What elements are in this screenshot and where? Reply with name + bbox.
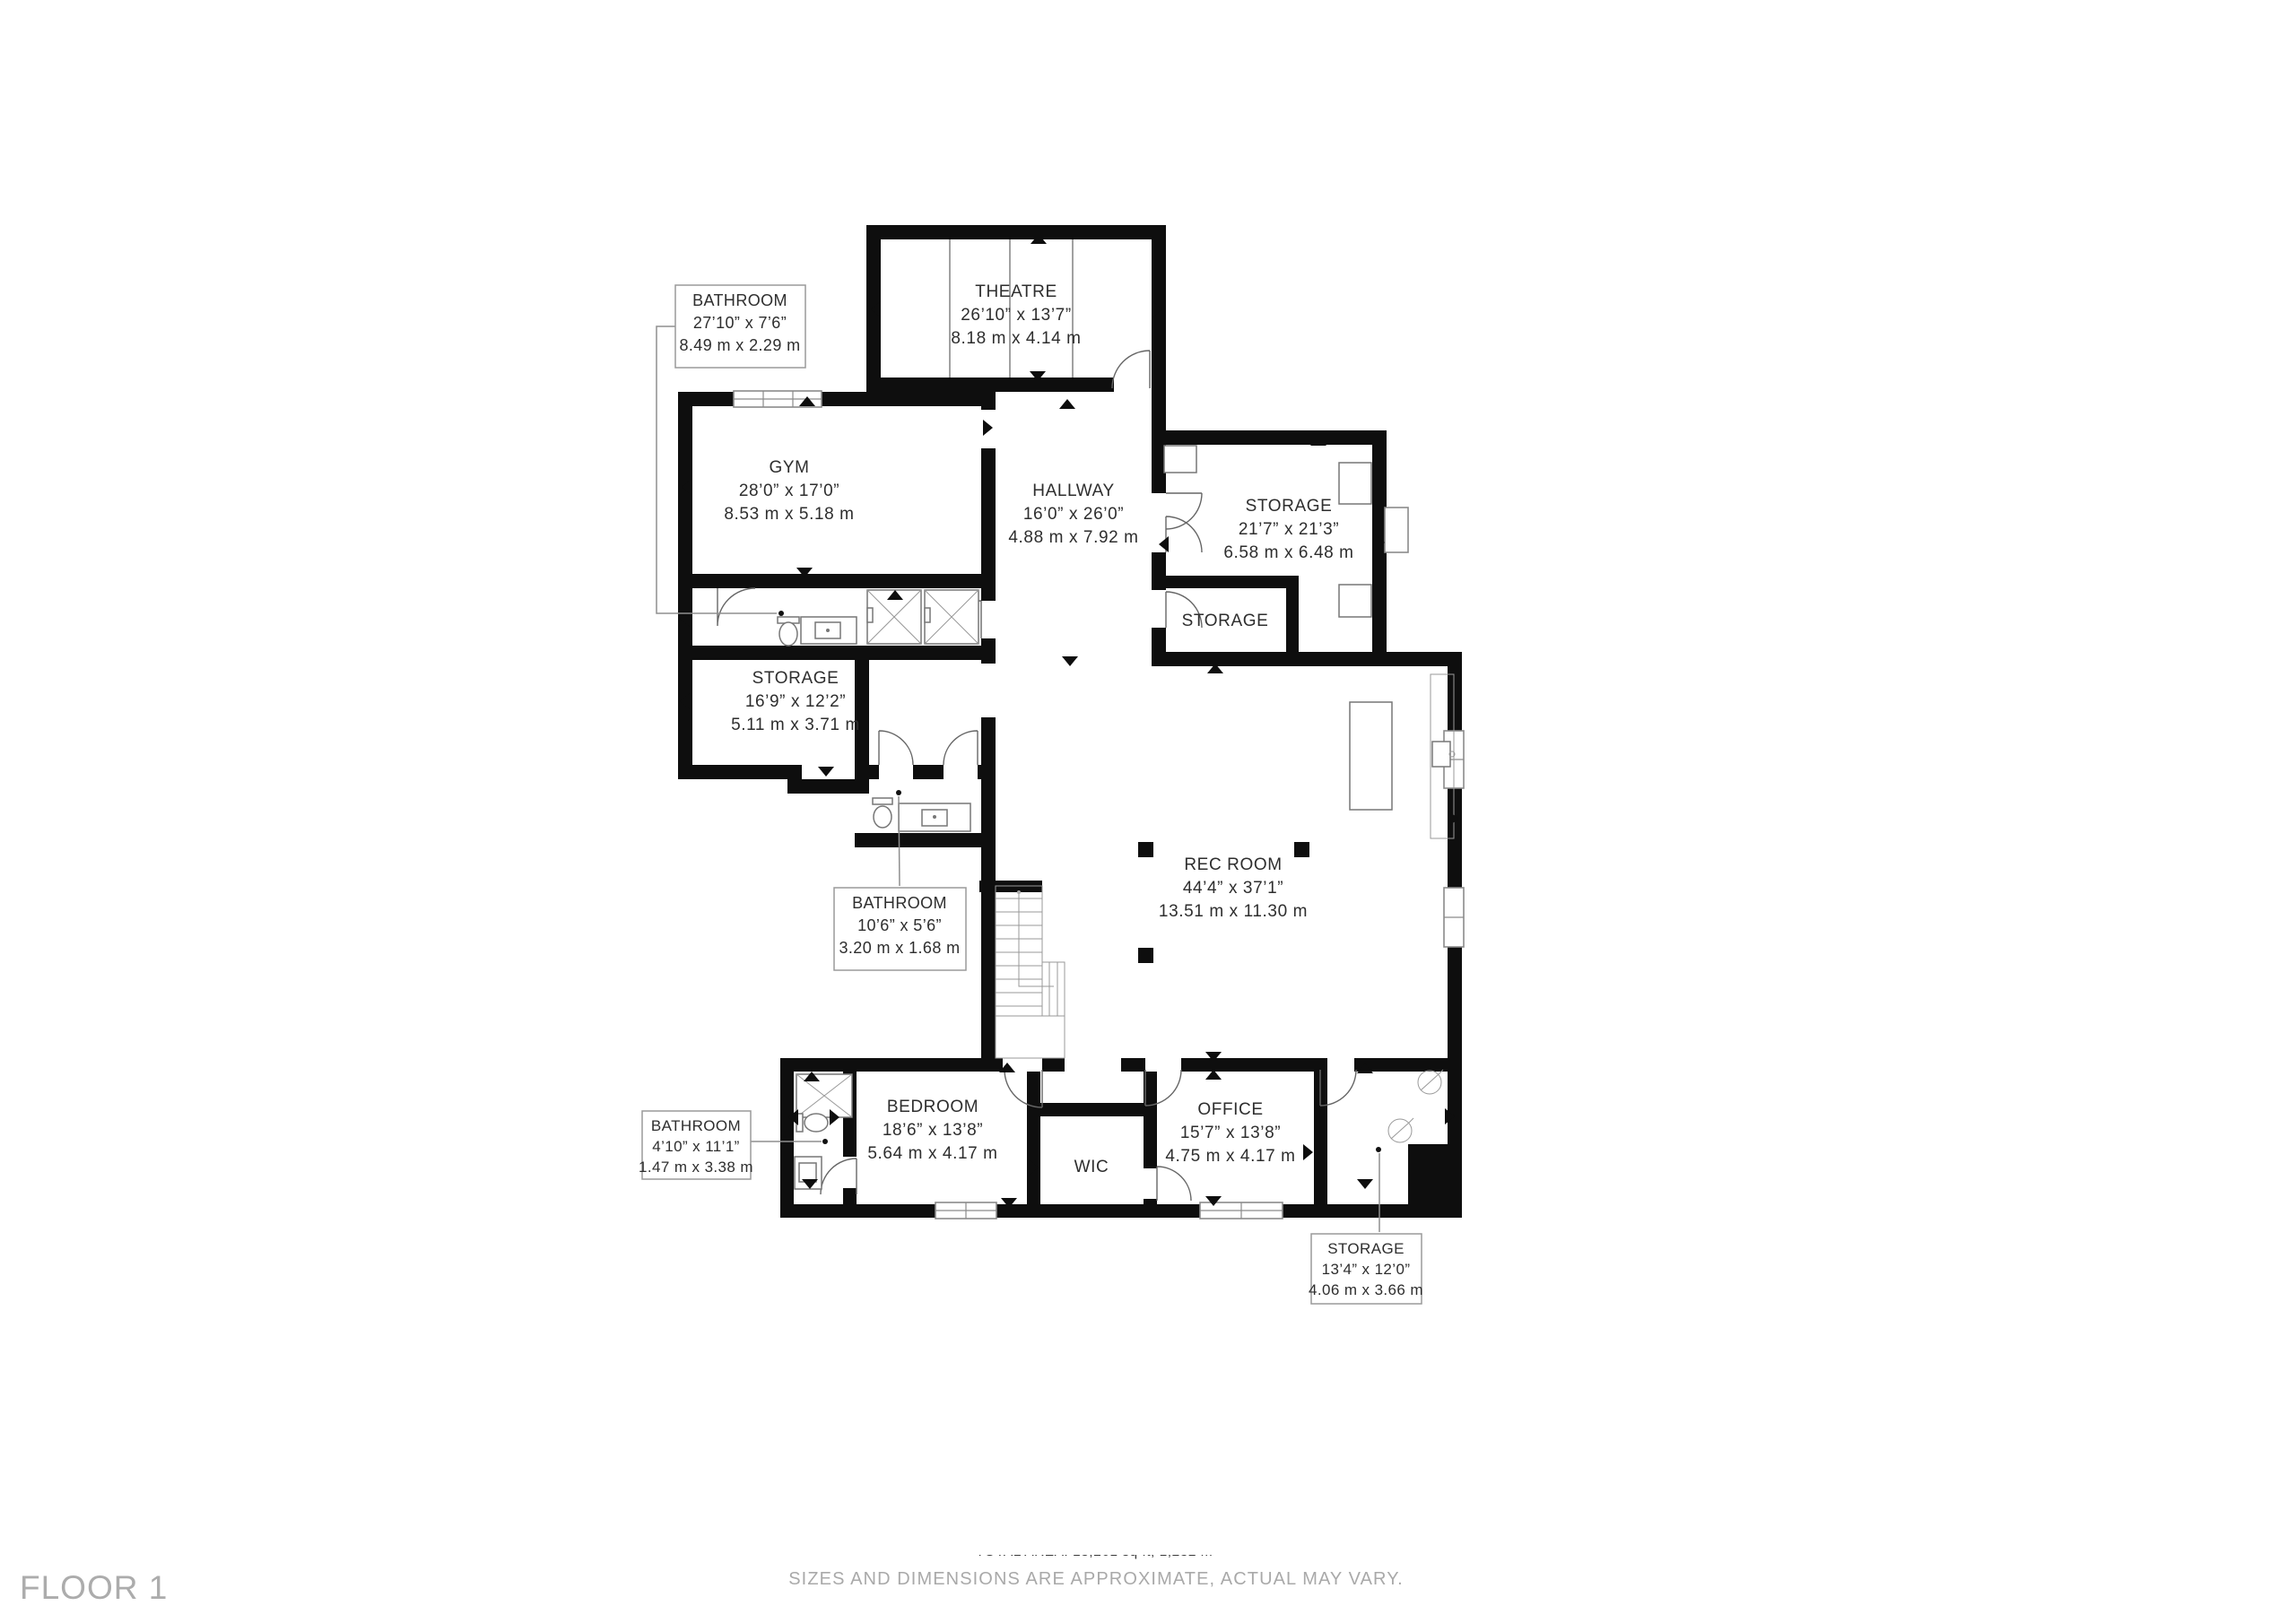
floorplan-drawing: THEATRE 26’10” x 13’7” 8.18 m x 4.14 m G… (0, 0, 2296, 1623)
callout-dims-ft: 27’10” x 7’6” (693, 314, 787, 332)
wall-segment (843, 1188, 857, 1204)
toilet (779, 622, 797, 646)
total-area-text: TOTAL AREA: 13,261 sq ft, 1,232 m (924, 1555, 1265, 1560)
room-dims-ft: 44’4” x 37’1” (1183, 879, 1283, 898)
wall-segment (1144, 1199, 1157, 1204)
total-area-text-clipped: TOTAL AREA: 13,261 sq ft, 1,232 m (924, 1555, 1265, 1563)
window-niche (1385, 508, 1408, 552)
stair-landing (996, 1016, 1065, 1058)
leader-dot (896, 790, 901, 795)
room-dims-m: 4.75 m x 4.17 m (1165, 1147, 1295, 1166)
furnace (1388, 1118, 1413, 1142)
leader-dot (778, 611, 784, 616)
room-label-theatre: THEATRE (975, 282, 1057, 301)
stair-return (1042, 962, 1065, 1016)
wall-segment (981, 392, 996, 410)
column (1294, 842, 1309, 857)
shower-stall (925, 590, 978, 644)
wall-segment (855, 833, 996, 847)
callout-name: BATHROOM (692, 291, 787, 309)
door-swing (1157, 1167, 1191, 1201)
wall-segment (780, 1058, 1003, 1072)
stair-guide-dot (1017, 890, 1021, 894)
wall-segment (787, 779, 869, 794)
wall-segment (866, 225, 1166, 239)
wall-segment (978, 765, 996, 779)
wall-segment (1042, 1058, 1065, 1072)
callout-dims-m: 4.06 m x 3.66 m (1309, 1281, 1423, 1298)
room-label-bedroom: BEDROOM (887, 1098, 978, 1116)
wall-segment (1121, 1058, 1145, 1072)
wall-segment (1152, 552, 1166, 590)
room-dims-m: 6.58 m x 6.48 m (1223, 543, 1353, 562)
leader-line (657, 326, 777, 613)
room-dims-ft: 26’10” x 13’7” (961, 306, 1072, 325)
door-swing (717, 588, 755, 626)
wall-segment (1152, 430, 1387, 445)
room-labels: THEATRE 26’10” x 13’7” 8.18 m x 4.14 m G… (724, 282, 1353, 1176)
direction-arrow (1062, 656, 1078, 666)
room-dims-ft: 16’0” x 26’0” (1023, 505, 1124, 524)
callout-name: STORAGE (1327, 1240, 1405, 1257)
room-label-hallway: HALLWAY (1032, 482, 1114, 500)
direction-arrow (1059, 399, 1075, 409)
room-dims-ft: 28’0” x 17’0” (739, 482, 839, 500)
room-dims-m: 13.51 m x 11.30 m (1159, 902, 1308, 921)
wall-segment (780, 1058, 794, 1218)
shelf (1339, 463, 1371, 504)
room-dims-m: 4.88 m x 7.92 m (1008, 528, 1138, 547)
floorplan-page: THEATRE 26’10” x 13’7” 8.18 m x 4.14 m G… (0, 0, 2296, 1623)
utility-panel (1432, 742, 1450, 767)
faucet (933, 815, 936, 819)
callout-name: BATHROOM (852, 894, 947, 912)
wall-segment (1152, 378, 1166, 392)
wall-segment (981, 588, 996, 601)
wall-segment (1286, 576, 1299, 664)
wall-segment (1408, 1144, 1462, 1218)
leader-dot (1376, 1147, 1381, 1152)
counter-island (1350, 702, 1392, 810)
wall-segment (1040, 1103, 1144, 1116)
direction-arrow (1357, 1179, 1373, 1189)
door-swing (1166, 493, 1202, 529)
leader-line (899, 796, 900, 886)
room-dims-ft: 16’9” x 12’2” (745, 692, 846, 711)
shelf (1164, 446, 1196, 473)
wall-segment (1152, 652, 1462, 666)
room-dims-ft: 15’7” x 13’8” (1180, 1124, 1281, 1142)
column (1138, 948, 1153, 963)
wall-segment (678, 765, 802, 779)
wall-segment (1027, 1072, 1040, 1204)
callout-dims-m: 3.20 m x 1.68 m (839, 939, 960, 957)
floor-title: FLOOR 1 (20, 1569, 168, 1607)
room-label-storage-main: STORAGE (1246, 497, 1333, 516)
room-dims-m: 5.64 m x 4.17 m (867, 1144, 997, 1163)
callout-name: BATHROOM (651, 1117, 741, 1134)
leader-dot (822, 1139, 828, 1144)
wall-segment (981, 833, 996, 1072)
room-label-office: OFFICE (1197, 1100, 1263, 1119)
callout-dims-m: 8.49 m x 2.29 m (679, 336, 800, 354)
staircase (996, 886, 1065, 1058)
faucet (826, 629, 830, 632)
direction-arrow (983, 420, 993, 436)
room-label-storage-inner: STORAGE (1182, 612, 1269, 630)
callout-dims-ft: 4’10” x 11’1” (652, 1138, 740, 1155)
room-dims-ft: 21’7” x 21’3” (1239, 520, 1339, 539)
room-label-gym: GYM (769, 458, 809, 477)
wall-segment (678, 574, 996, 588)
room-label-wic: WIC (1074, 1158, 1109, 1176)
wall-segment (981, 638, 996, 664)
door-swing (1112, 351, 1150, 388)
callout-dims-ft: 10’6” x 5’6” (857, 916, 942, 934)
wall-segment (1181, 1058, 1318, 1072)
wall-segment (678, 646, 996, 660)
wall-segment (1166, 576, 1299, 588)
disclaimer-text: SIZES AND DIMENSIONS ARE APPROXIMATE, AC… (737, 1569, 1455, 1590)
wall-segment (855, 765, 879, 779)
direction-arrow (1303, 1144, 1313, 1160)
wall-segment (780, 1204, 1462, 1218)
sink (799, 1163, 816, 1182)
wall-segment (822, 392, 988, 406)
toilet (874, 806, 891, 828)
water-heater (1418, 1070, 1443, 1094)
toilet-tank (873, 798, 892, 804)
shelf (1339, 585, 1371, 617)
room-label-rec-room: REC ROOM (1184, 855, 1282, 874)
door-swing (1166, 516, 1202, 552)
callout-dims-ft: 13’4” x 12’0” (1322, 1261, 1411, 1278)
room-dims-m: 8.18 m x 4.14 m (951, 329, 1081, 348)
column (1138, 842, 1153, 857)
toilet (804, 1114, 828, 1132)
wall-segment (866, 378, 1114, 392)
callout-dims-m: 1.47 m x 3.38 m (639, 1159, 753, 1176)
door-swing (944, 731, 978, 765)
door-swing (879, 731, 913, 765)
room-dims-m: 5.11 m x 3.71 m (731, 716, 860, 734)
room-dims-m: 8.53 m x 5.18 m (724, 505, 854, 524)
wall-segment (981, 448, 996, 574)
direction-arrow (818, 767, 834, 777)
direction-arrow (1159, 536, 1169, 552)
wall-segment (913, 765, 944, 779)
room-label-storage-left: STORAGE (752, 669, 839, 688)
room-dims-ft: 18’6” x 13’8” (883, 1121, 983, 1140)
